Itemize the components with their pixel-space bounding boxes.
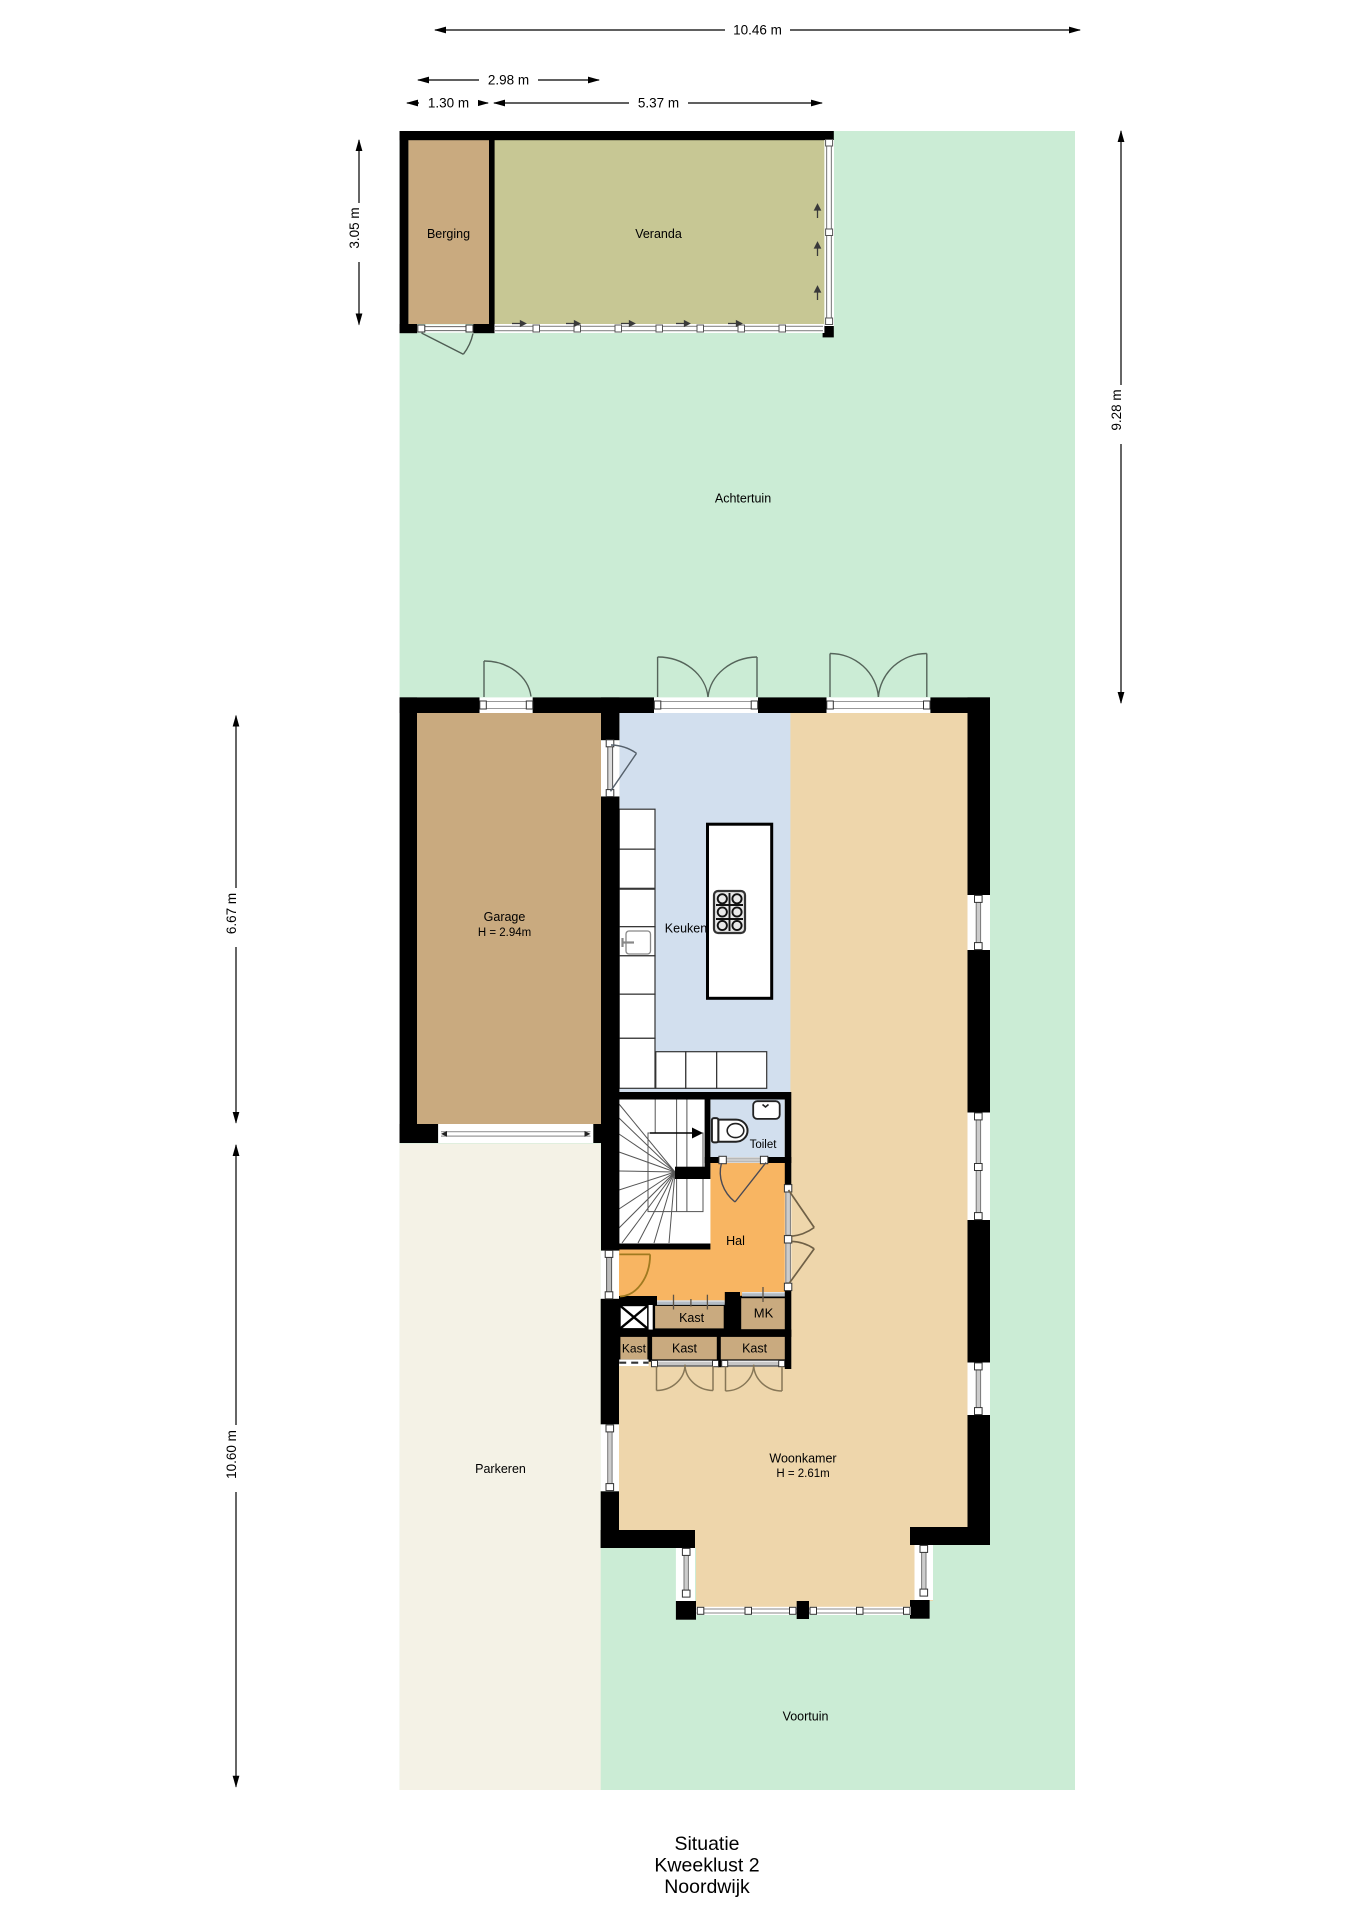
svg-text:Kweeklust 2: Kweeklust 2 [654, 1855, 759, 1877]
svg-text:Toilet: Toilet [750, 1139, 778, 1151]
svg-text:Situatie: Situatie [674, 1833, 739, 1855]
svg-text:Berging: Berging [427, 227, 470, 241]
svg-text:Kast: Kast [622, 1342, 647, 1356]
svg-text:5.37 m: 5.37 m [638, 96, 679, 111]
svg-text:Woonkamer: Woonkamer [769, 1452, 836, 1466]
svg-text:Kast: Kast [672, 1342, 698, 1356]
svg-text:3.05 m: 3.05 m [347, 207, 362, 248]
svg-text:Achtertuin: Achtertuin [715, 492, 771, 506]
svg-text:10.46 m: 10.46 m [733, 23, 782, 38]
svg-text:Hal: Hal [726, 1234, 745, 1248]
svg-text:H = 2.61m: H = 2.61m [776, 1468, 829, 1480]
svg-text:Parkeren: Parkeren [475, 1462, 526, 1476]
svg-text:Kast: Kast [679, 1311, 705, 1325]
svg-text:Veranda: Veranda [635, 227, 682, 241]
svg-text:1.30 m: 1.30 m [428, 96, 469, 111]
svg-text:Voortuin: Voortuin [783, 1710, 829, 1724]
svg-text:Noordwijk: Noordwijk [664, 1876, 750, 1898]
svg-text:Garage: Garage [484, 910, 526, 924]
svg-text:10.60 m: 10.60 m [224, 1430, 239, 1479]
svg-text:MK: MK [754, 1306, 774, 1321]
svg-text:H = 2.94m: H = 2.94m [478, 927, 531, 939]
svg-text:6.67 m: 6.67 m [224, 893, 239, 934]
svg-text:Kast: Kast [742, 1342, 768, 1356]
svg-text:9.28 m: 9.28 m [1109, 389, 1124, 430]
svg-text:Keuken: Keuken [665, 922, 707, 936]
svg-text:2.98 m: 2.98 m [488, 73, 529, 88]
